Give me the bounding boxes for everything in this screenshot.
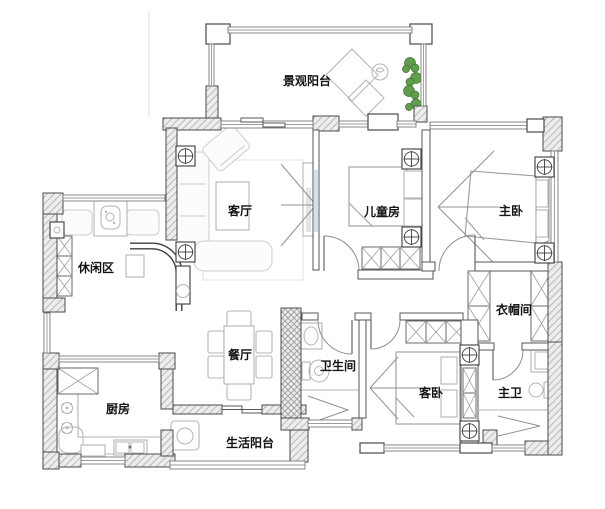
room-living xyxy=(177,124,316,280)
chair xyxy=(208,331,224,353)
column-marker-icon xyxy=(460,421,479,441)
door-master xyxy=(439,235,475,271)
wardrobe-leisure xyxy=(57,236,72,296)
room-master xyxy=(438,151,549,263)
pillar xyxy=(368,114,398,130)
shower-arrow xyxy=(498,416,540,436)
room-service-balcony xyxy=(171,421,199,450)
room-label-living: 客厅 xyxy=(227,203,252,218)
column-marker-icon xyxy=(402,149,421,169)
column-marker-icon xyxy=(176,146,195,166)
plant-icon xyxy=(402,58,421,111)
door-bathroom xyxy=(318,320,352,354)
washing-machine xyxy=(171,421,199,450)
room-label-master: 主卧 xyxy=(499,203,523,218)
column-marker-icon xyxy=(402,227,421,247)
column-marker-icon xyxy=(460,345,479,365)
sofa-chaise xyxy=(194,241,272,271)
balcony-table xyxy=(326,49,378,101)
room-bathroom xyxy=(300,323,359,424)
room-label-service-balcony: 生活阳台 xyxy=(226,435,274,450)
room-label-kitchen: 厨房 xyxy=(106,401,130,416)
room-guest xyxy=(370,352,460,424)
sliding-door xyxy=(222,406,242,410)
chair xyxy=(256,331,272,353)
pillow xyxy=(536,210,548,237)
pillar xyxy=(360,443,384,453)
column-marker-icon xyxy=(535,157,554,177)
room-label-cloakroom: 衣帽间 xyxy=(496,302,532,317)
tea-table xyxy=(94,199,127,236)
glass-panel xyxy=(314,170,318,232)
chair xyxy=(208,356,224,378)
nightstand xyxy=(404,171,423,198)
pillar xyxy=(206,24,230,44)
sliding-door xyxy=(242,410,262,414)
room-label-leisure: 休闲区 xyxy=(77,260,114,275)
double-sink xyxy=(114,440,147,455)
room-label-dining: 餐厅 xyxy=(228,347,252,362)
chair xyxy=(256,356,272,378)
pillow xyxy=(536,180,548,207)
pillar xyxy=(527,119,544,132)
door-master-bath xyxy=(493,350,523,380)
room-label-master-bath: 主卫 xyxy=(498,385,522,400)
floor-plan-drawing: 景观阳台 客厅 儿童房 主卧 休闲区 衣帽间 餐厅 卫生间 客卧 主卫 厨房 生… xyxy=(0,0,605,509)
nightstand xyxy=(404,199,423,226)
column-marker-icon xyxy=(535,243,554,263)
pillar xyxy=(410,24,432,44)
toilet xyxy=(529,383,543,397)
direction-arrow xyxy=(438,151,500,263)
door-guest xyxy=(371,320,400,349)
pillow xyxy=(441,357,457,384)
shaft-cells xyxy=(463,368,476,418)
wardrobe-kids xyxy=(362,247,420,269)
room-scenic-balcony xyxy=(326,49,422,116)
chair xyxy=(227,311,251,327)
balcony-chair xyxy=(348,80,384,116)
chair xyxy=(227,384,251,400)
sliding-door xyxy=(263,123,285,127)
cushion xyxy=(126,210,159,235)
column-marker-icon xyxy=(176,242,195,262)
room-label-kids: 儿童房 xyxy=(363,204,400,219)
door-kids xyxy=(324,236,359,271)
floor-plan: 景观阳台 客厅 儿童房 主卧 休闲区 衣帽间 餐厅 卫生间 客卧 主卫 厨房 生… xyxy=(0,0,605,509)
sliding-door xyxy=(241,118,263,122)
pillow xyxy=(441,390,457,417)
wardrobe-guest xyxy=(406,321,467,343)
room-label-bathroom: 卫生间 xyxy=(320,358,356,373)
room-label-guest: 客卧 xyxy=(418,385,443,400)
stool xyxy=(126,255,144,277)
tray xyxy=(81,445,105,456)
cushion xyxy=(62,210,92,235)
pillar xyxy=(460,443,492,453)
room-label-scenic-balcony: 景观阳台 xyxy=(283,73,331,88)
